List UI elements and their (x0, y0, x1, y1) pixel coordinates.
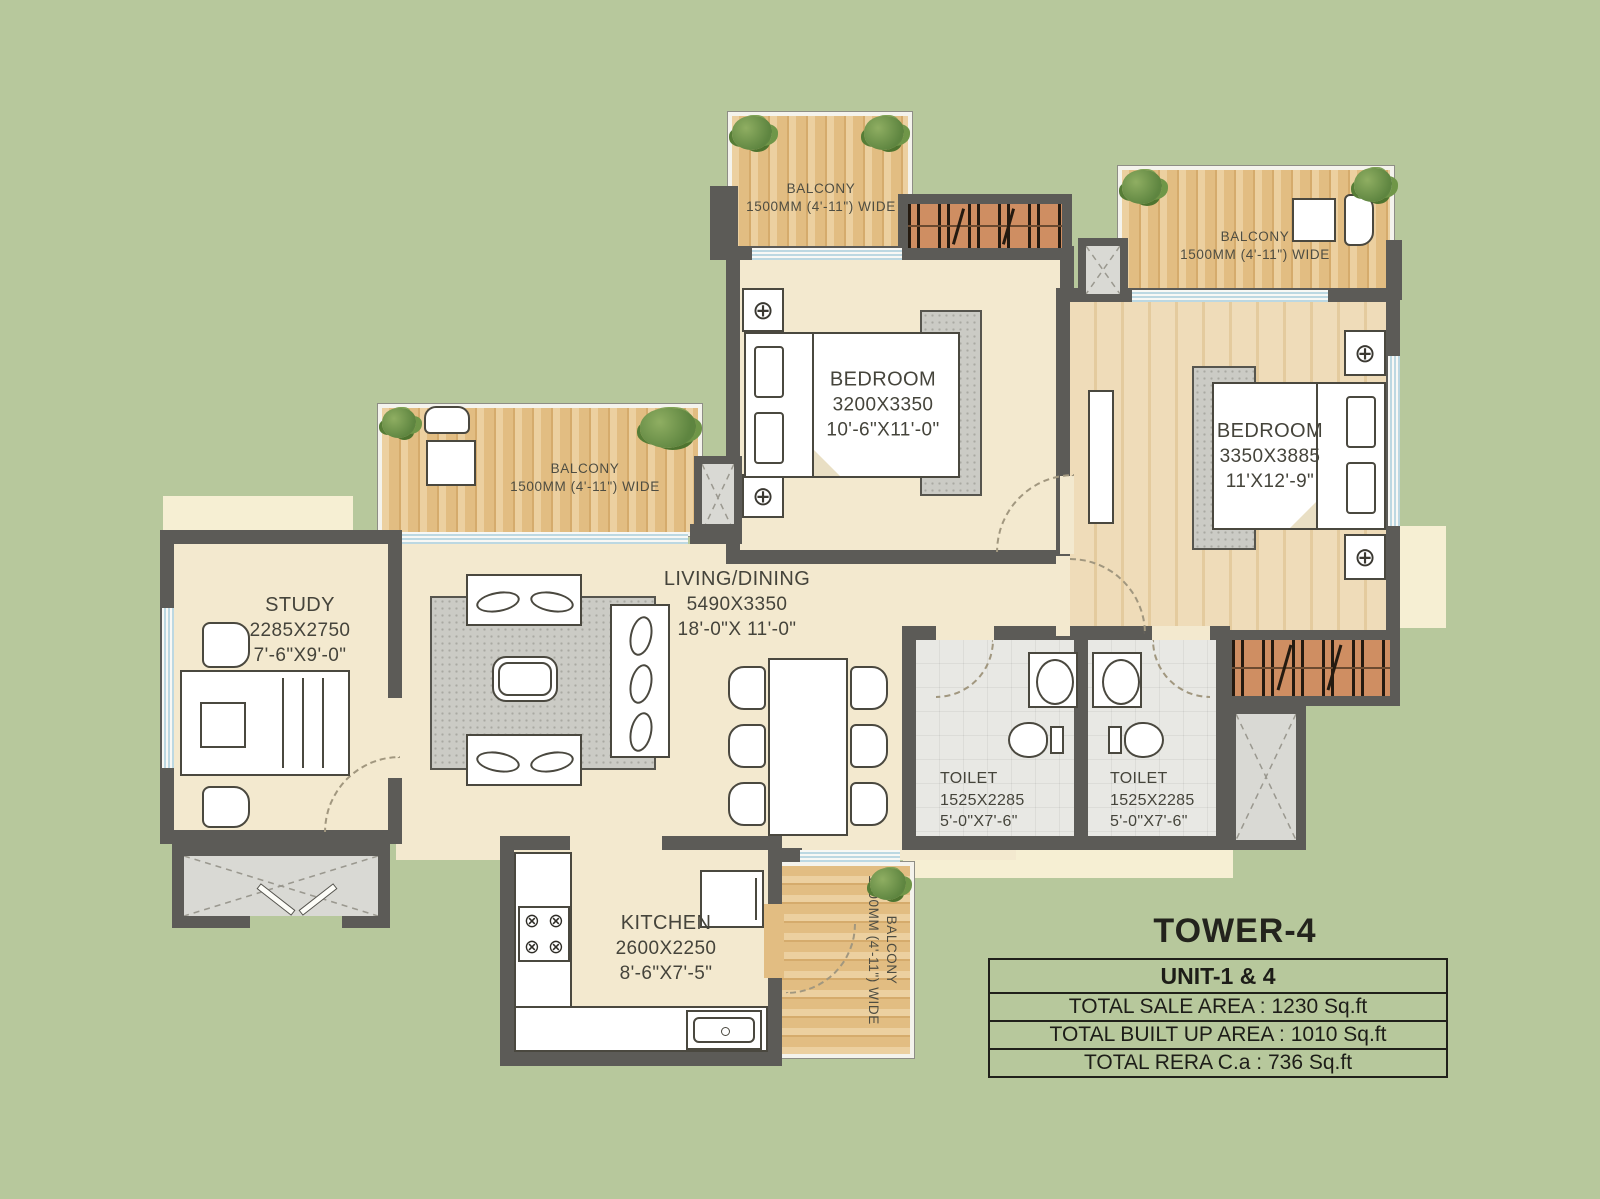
area-table-row: TOTAL BUILT UP AREA : 1010 Sq.ft (990, 1020, 1446, 1048)
balcony-left-label: BALCONY1500MM (4'-11") WIDE (470, 460, 700, 496)
wc-bowl (1124, 722, 1164, 758)
burner-icon: ⊗ (548, 910, 564, 933)
pillow (754, 412, 784, 464)
study-chair (202, 786, 250, 828)
plinth-pad (1398, 526, 1446, 628)
dining-chair (850, 782, 888, 826)
cushion (475, 588, 522, 615)
dining-table (768, 658, 848, 836)
sofa-two-seat (466, 574, 582, 626)
room-label-kitchen: KITCHEN 2600X2250 8'-6"X7'-5" (566, 910, 766, 987)
area-table-row: TOTAL RERA C.a : 736 Sq.ft (990, 1048, 1446, 1076)
door-opening (570, 836, 662, 850)
entry-opening (250, 916, 342, 928)
tv-unit (1088, 390, 1114, 524)
floor-plan: ⊕ ⊕ BEDROOM 3200X3350 10'-6"X11'-0" ⊕ ⊕ … (0, 0, 1600, 1199)
door-opening (764, 904, 784, 978)
nightstand: ⊕ (1344, 330, 1386, 376)
wc-bowl (1008, 722, 1048, 758)
washbasin (1092, 652, 1142, 708)
nightstand: ⊕ (742, 288, 784, 332)
burner-icon: ⊗ (524, 936, 540, 959)
nightstand: ⊕ (1344, 534, 1386, 580)
window (1388, 356, 1400, 526)
washbasin (1028, 652, 1078, 708)
balcony-chair (424, 406, 470, 434)
balcony-top-label: BALCONY1500MM (4'-11") WIDE (736, 180, 906, 216)
area-table: UNIT-1 & 4 TOTAL SALE AREA : 1230 Sq.ft … (988, 958, 1448, 1078)
wall-segment (710, 186, 738, 260)
wc (1108, 718, 1164, 762)
wardrobe-right (1222, 630, 1400, 706)
room-label-toilet2: TOILET 1525X2285 5'-0"X7'-6" (1110, 768, 1230, 833)
room-label-living: LIVING/DINING 5490X3350 18'-0"X 11'-0" (637, 566, 837, 643)
balcony-table (426, 440, 476, 486)
room-label-bedroom1: BEDROOM 3200X3350 10'-6"X11'-0" (810, 367, 956, 444)
cross-icon (1236, 714, 1296, 840)
window (402, 532, 688, 544)
cross-icon (1086, 246, 1120, 294)
dining-chair (728, 666, 766, 710)
basin-bowl (1036, 659, 1074, 705)
area-table-unit-row: UNIT-1 & 4 (990, 960, 1446, 992)
sofa-two-seat (466, 734, 582, 786)
blanket-fold (814, 450, 840, 476)
basin-bowl (1102, 659, 1140, 705)
room-label-study: STUDY 2285X2750 7'-6"X9'-0" (210, 592, 390, 669)
wall-segment (782, 848, 802, 862)
shaft-top (1078, 238, 1128, 302)
cushion (626, 662, 656, 706)
balcony-table (1292, 198, 1336, 242)
cushion (475, 748, 522, 775)
window (800, 850, 900, 862)
hanger-icon (1276, 645, 1292, 691)
wc-tank (1050, 726, 1064, 754)
room-label-toilet1: TOILET 1525X2285 5'-0"X7'-6" (940, 768, 1060, 833)
kitchen-sink (686, 1010, 762, 1050)
door-opening (936, 626, 994, 640)
cushion (626, 710, 656, 754)
dining-chair (850, 724, 888, 768)
tower-title: TOWER-4 (1060, 912, 1410, 951)
cushion (529, 588, 576, 615)
study-desk (180, 670, 350, 776)
window (752, 248, 902, 260)
nightstand: ⊕ (742, 474, 784, 518)
wc (1008, 718, 1064, 762)
pillow (754, 346, 784, 398)
window (1132, 290, 1328, 302)
wall-segment (690, 524, 742, 544)
hanger-icon (1002, 208, 1015, 244)
area-table-row: TOTAL SALE AREA : 1230 Sq.ft (990, 992, 1446, 1020)
sink-drain (721, 1027, 730, 1036)
blanket-fold (1290, 502, 1316, 528)
dining-chair (850, 666, 888, 710)
cross-icon (702, 464, 734, 532)
hanger-icon (1327, 645, 1343, 691)
hob: ⊗⊗⊗⊗ (518, 906, 570, 962)
dining-chair (728, 724, 766, 768)
door-opening (1056, 556, 1070, 636)
coffee-table (492, 656, 558, 702)
door-opening (1152, 626, 1210, 640)
desk-line (282, 678, 284, 768)
desk-line (322, 678, 324, 768)
burner-icon: ⊗ (548, 936, 564, 959)
wall-segment (1386, 240, 1402, 300)
shaft-right (1226, 704, 1306, 850)
desk-item (200, 702, 246, 748)
coffee-table-inner (498, 662, 552, 696)
hanger-icon (952, 208, 965, 244)
room-label-bedroom2: BEDROOM 3350X3885 11'X12'-9" (1160, 418, 1380, 495)
burner-icon: ⊗ (524, 910, 540, 933)
bed-bedroom1: BEDROOM 3200X3350 10'-6"X11'-0" (744, 332, 960, 478)
dining-chair (728, 782, 766, 826)
window (162, 608, 174, 768)
wardrobe-top (898, 194, 1072, 258)
desk-line (302, 678, 304, 768)
wc-tank (1108, 726, 1122, 754)
cushion (529, 748, 576, 775)
